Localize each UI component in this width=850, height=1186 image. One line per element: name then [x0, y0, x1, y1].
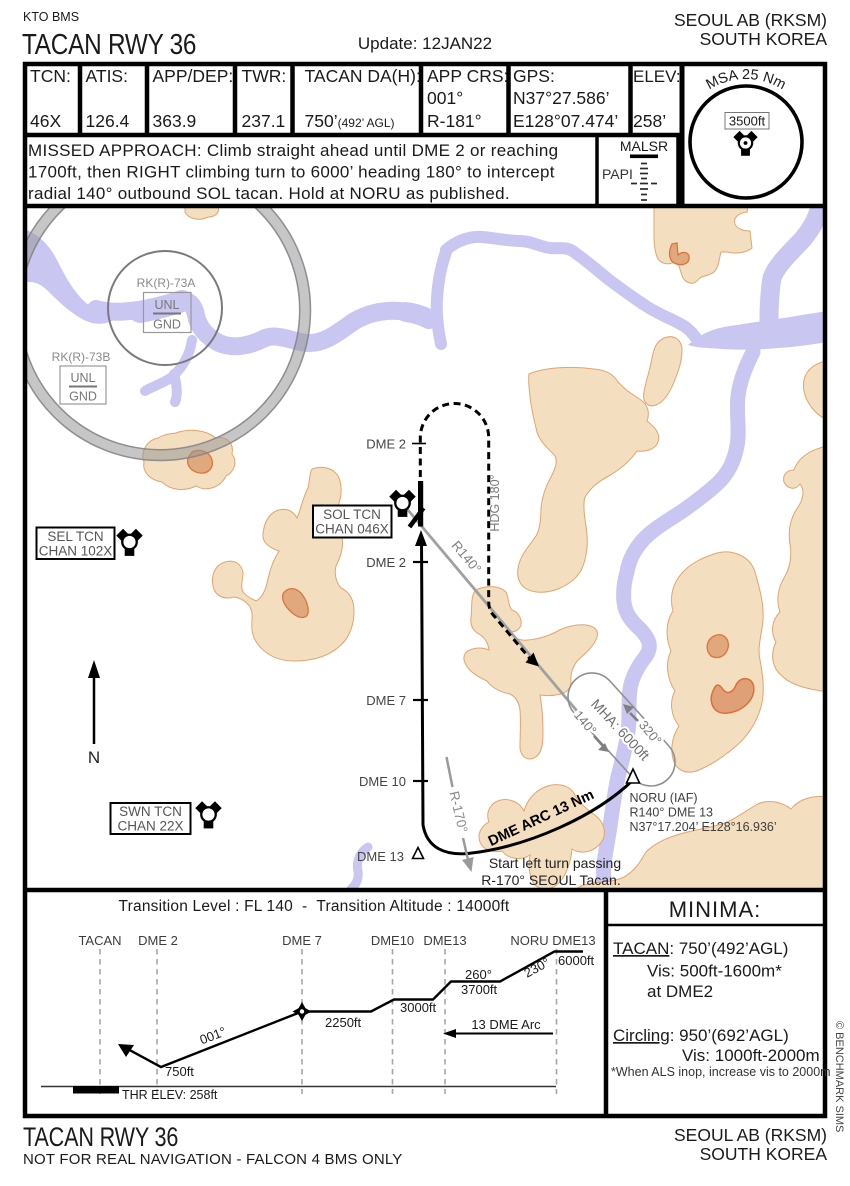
svg-text:N37°27.586’: N37°27.586’: [513, 88, 610, 108]
svg-text:46X: 46X: [30, 111, 61, 131]
svg-text:TACAN RWY 36: TACAN RWY 36: [23, 1123, 178, 1153]
svg-text:SWN TCN: SWN TCN: [119, 804, 182, 819]
svg-text:CHAN 22X: CHAN 22X: [117, 819, 183, 834]
svg-text:DME 2: DME 2: [366, 437, 406, 452]
svg-text:TACAN: TACAN: [78, 933, 121, 948]
svg-text:TCN:: TCN:: [30, 66, 71, 86]
svg-text:DME 10: DME 10: [359, 774, 406, 789]
svg-text:N: N: [88, 748, 100, 767]
svg-text:MINIMA:: MINIMA:: [669, 897, 762, 922]
svg-text:KTO BMS: KTO BMS: [23, 10, 79, 24]
svg-text:TWR:: TWR:: [242, 66, 287, 86]
svg-text:3000ft: 3000ft: [400, 1000, 437, 1015]
svg-text:APP CRS:: APP CRS:: [427, 66, 508, 86]
svg-text:THR ELEV: 258ft: THR ELEV: 258ft: [122, 1088, 218, 1102]
svg-text:3500ft: 3500ft: [729, 114, 766, 129]
svg-text:6000ft: 6000ft: [558, 953, 595, 968]
svg-text:Start left turn passing: Start left turn passing: [489, 855, 621, 871]
svg-text:TACAN DA(H):: TACAN DA(H):: [305, 66, 421, 86]
svg-text:PAPI: PAPI: [602, 166, 633, 182]
svg-text:GND: GND: [153, 318, 181, 332]
svg-text:SOL TCN: SOL TCN: [323, 507, 381, 522]
svg-text:MISSED APPROACH: Climb straigh: MISSED APPROACH: Climb straight ahead un…: [28, 141, 558, 160]
svg-text:1700ft, then RIGHT climbing tu: 1700ft, then RIGHT climbing turn to 6000…: [28, 163, 555, 182]
svg-text:HDG 180°: HDG 180°: [488, 474, 502, 531]
svg-text:E128°07.474’: E128°07.474’: [513, 111, 618, 131]
svg-text:R140° DME 13: R140° DME 13: [630, 806, 714, 820]
svg-text:UNL: UNL: [154, 298, 179, 312]
svg-text:750ft: 750ft: [165, 1064, 194, 1079]
svg-text:NOT FOR REAL NAVIGATION - FALC: NOT FOR REAL NAVIGATION - FALCON 4 BMS O…: [23, 1151, 403, 1168]
svg-text:MALSR: MALSR: [620, 138, 668, 154]
svg-text:SEOUL AB (RKSM): SEOUL AB (RKSM): [674, 10, 827, 30]
svg-text:Vis: 1000ft-2000m: Vis: 1000ft-2000m: [682, 1046, 820, 1065]
svg-text:APP/DEP:: APP/DEP:: [153, 66, 234, 86]
svg-text:N37°17.204’ E128°16.936’: N37°17.204’ E128°16.936’: [630, 820, 777, 834]
svg-text:001°: 001°: [198, 1024, 228, 1048]
svg-text:SEL TCN: SEL TCN: [47, 529, 103, 544]
svg-text:NORU DME13: NORU DME13: [510, 933, 595, 948]
svg-text:SOUTH KOREA: SOUTH KOREA: [700, 29, 828, 49]
svg-text:DME13: DME13: [423, 933, 466, 948]
svg-text:Update: 12JAN22: Update: 12JAN22: [358, 34, 492, 53]
svg-text:GND: GND: [69, 390, 97, 404]
svg-text:DME 7: DME 7: [366, 693, 406, 708]
svg-text:R-181°: R-181°: [427, 111, 482, 131]
svg-text:© BENCHMARK SIMS: © BENCHMARK SIMS: [833, 1021, 845, 1132]
svg-text:SEOUL AB (RKSM): SEOUL AB (RKSM): [674, 1125, 827, 1145]
svg-text:230°: 230°: [521, 955, 552, 981]
svg-text:3700ft: 3700ft: [461, 982, 498, 997]
svg-text:UNL: UNL: [70, 371, 95, 385]
svg-text:363.9: 363.9: [153, 111, 197, 131]
svg-text:260°: 260°: [465, 967, 492, 982]
svg-text:CHAN 046X: CHAN 046X: [315, 522, 389, 537]
svg-text:radial 140° outbound SOL tacan: radial 140° outbound SOL tacan. Hold at …: [28, 184, 510, 203]
svg-text:13 DME Arc: 13 DME Arc: [471, 1017, 541, 1032]
svg-text:R-170° SEOUL Tacan.: R-170° SEOUL Tacan.: [481, 872, 620, 888]
svg-text:at DME2: at DME2: [647, 982, 713, 1001]
svg-text:ELEV:: ELEV:: [633, 67, 681, 86]
svg-text:258’: 258’: [633, 111, 666, 131]
svg-text:GPS:: GPS:: [513, 66, 555, 86]
svg-text:R-170°: R-170°: [446, 790, 470, 834]
svg-text:DME 2: DME 2: [138, 933, 178, 948]
svg-text:DME10: DME10: [371, 933, 414, 948]
svg-text:2250ft: 2250ft: [325, 1015, 362, 1030]
svg-text:Circling: 950’(692’AGL): Circling: 950’(692’AGL): [613, 1026, 789, 1045]
svg-text:Transition Level : FL 140 -: Transition Level : FL 140 - Transition A…: [119, 898, 510, 915]
svg-text:R140°: R140°: [449, 538, 485, 577]
svg-text:Vis: 500ft-1600m*: Vis: 500ft-1600m*: [647, 962, 782, 981]
svg-text:DME 13: DME 13: [357, 849, 404, 864]
svg-text:237.1: 237.1: [242, 111, 286, 131]
svg-text:001°: 001°: [427, 88, 463, 108]
svg-text:*When ALS inop, increase vis t: *When ALS inop, increase vis to 2000m: [611, 1065, 831, 1079]
svg-text:SOUTH KOREA: SOUTH KOREA: [700, 1144, 828, 1164]
svg-text:TACAN: 750’(492’AGL): TACAN: 750’(492’AGL): [613, 939, 788, 958]
svg-text:ATIS:: ATIS:: [86, 66, 128, 86]
svg-text:DME 7: DME 7: [282, 933, 322, 948]
svg-text:DME 2: DME 2: [366, 555, 406, 570]
svg-text:NORU (IAF): NORU (IAF): [630, 791, 698, 805]
svg-text:TACAN RWY 36: TACAN RWY 36: [22, 28, 196, 60]
svg-text:750’(492’ AGL): 750’(492’ AGL): [305, 111, 395, 131]
svg-text:RK(R)-73A: RK(R)-73A: [137, 276, 196, 290]
svg-text:RK(R)-73B: RK(R)-73B: [52, 350, 111, 364]
svg-text:MSA 25 Nm: MSA 25 Nm: [704, 67, 789, 93]
svg-text:126.4: 126.4: [86, 111, 130, 131]
svg-text:CHAN 102X: CHAN 102X: [39, 544, 113, 559]
